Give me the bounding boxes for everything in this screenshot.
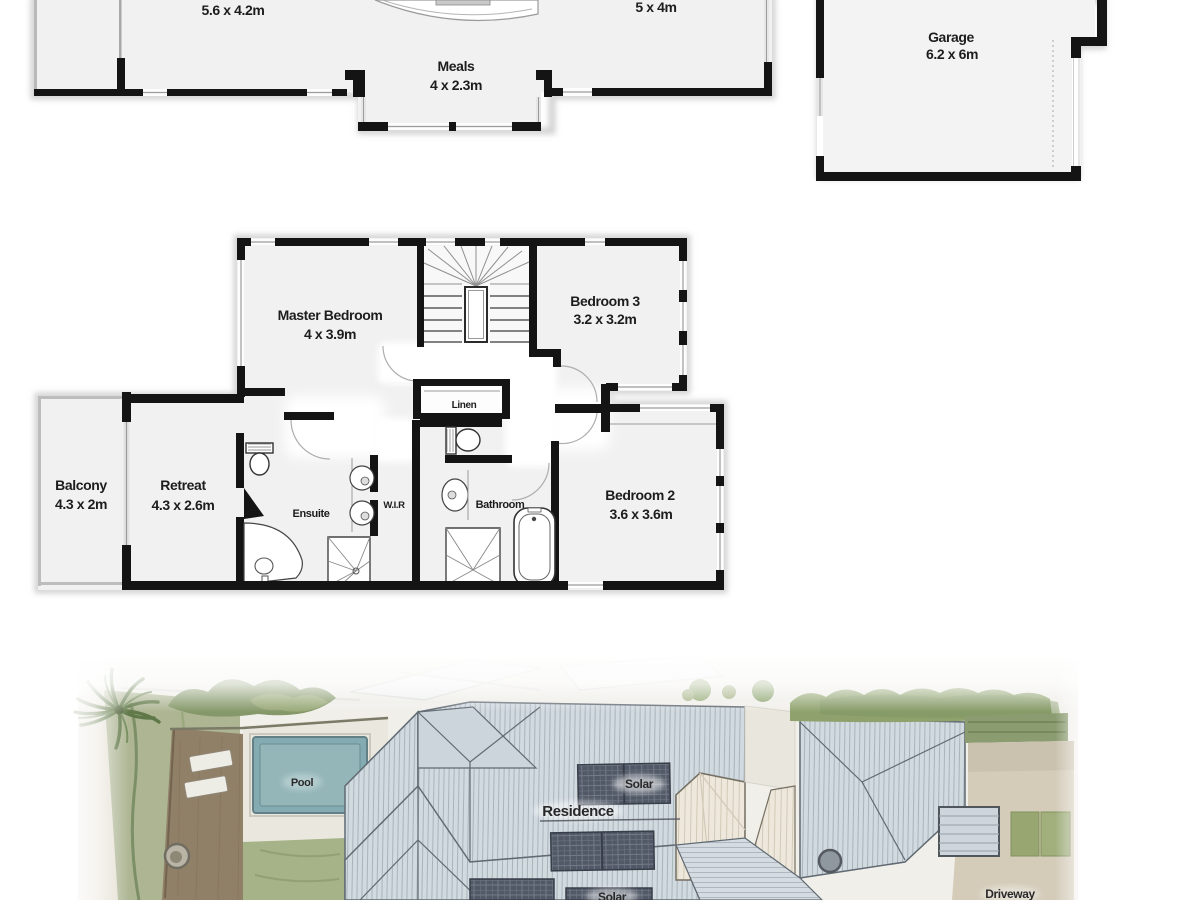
svg-text:3.2 x 3.2m: 3.2 x 3.2m (574, 311, 637, 327)
svg-text:5.6 x 4.2m: 5.6 x 4.2m (202, 2, 265, 18)
svg-text:5 x 4m: 5 x 4m (635, 0, 676, 15)
svg-text:Master Bedroom: Master Bedroom (278, 307, 383, 323)
svg-text:Bathroom: Bathroom (476, 499, 525, 511)
svg-text:4 x 3.9m: 4 x 3.9m (304, 326, 356, 342)
svg-text:Ensuite: Ensuite (293, 508, 330, 520)
svg-text:4.3 x 2m: 4.3 x 2m (55, 496, 107, 512)
svg-text:Bedroom 3: Bedroom 3 (570, 293, 640, 309)
svg-text:6.2 x 6m: 6.2 x 6m (926, 46, 978, 62)
svg-text:Garage: Garage (928, 29, 974, 45)
svg-text:3.6 x 3.6m: 3.6 x 3.6m (610, 506, 673, 522)
svg-text:Linen: Linen (452, 400, 477, 411)
svg-text:Bedroom 2: Bedroom 2 (605, 487, 675, 503)
svg-text:4 x 2.3m: 4 x 2.3m (430, 77, 482, 93)
svg-text:Retreat: Retreat (160, 477, 206, 493)
svg-text:4.3 x 2.6m: 4.3 x 2.6m (152, 497, 215, 513)
svg-text:Meals: Meals (438, 58, 476, 74)
svg-text:Balcony: Balcony (55, 477, 107, 493)
svg-text:W.I.R: W.I.R (383, 500, 405, 511)
